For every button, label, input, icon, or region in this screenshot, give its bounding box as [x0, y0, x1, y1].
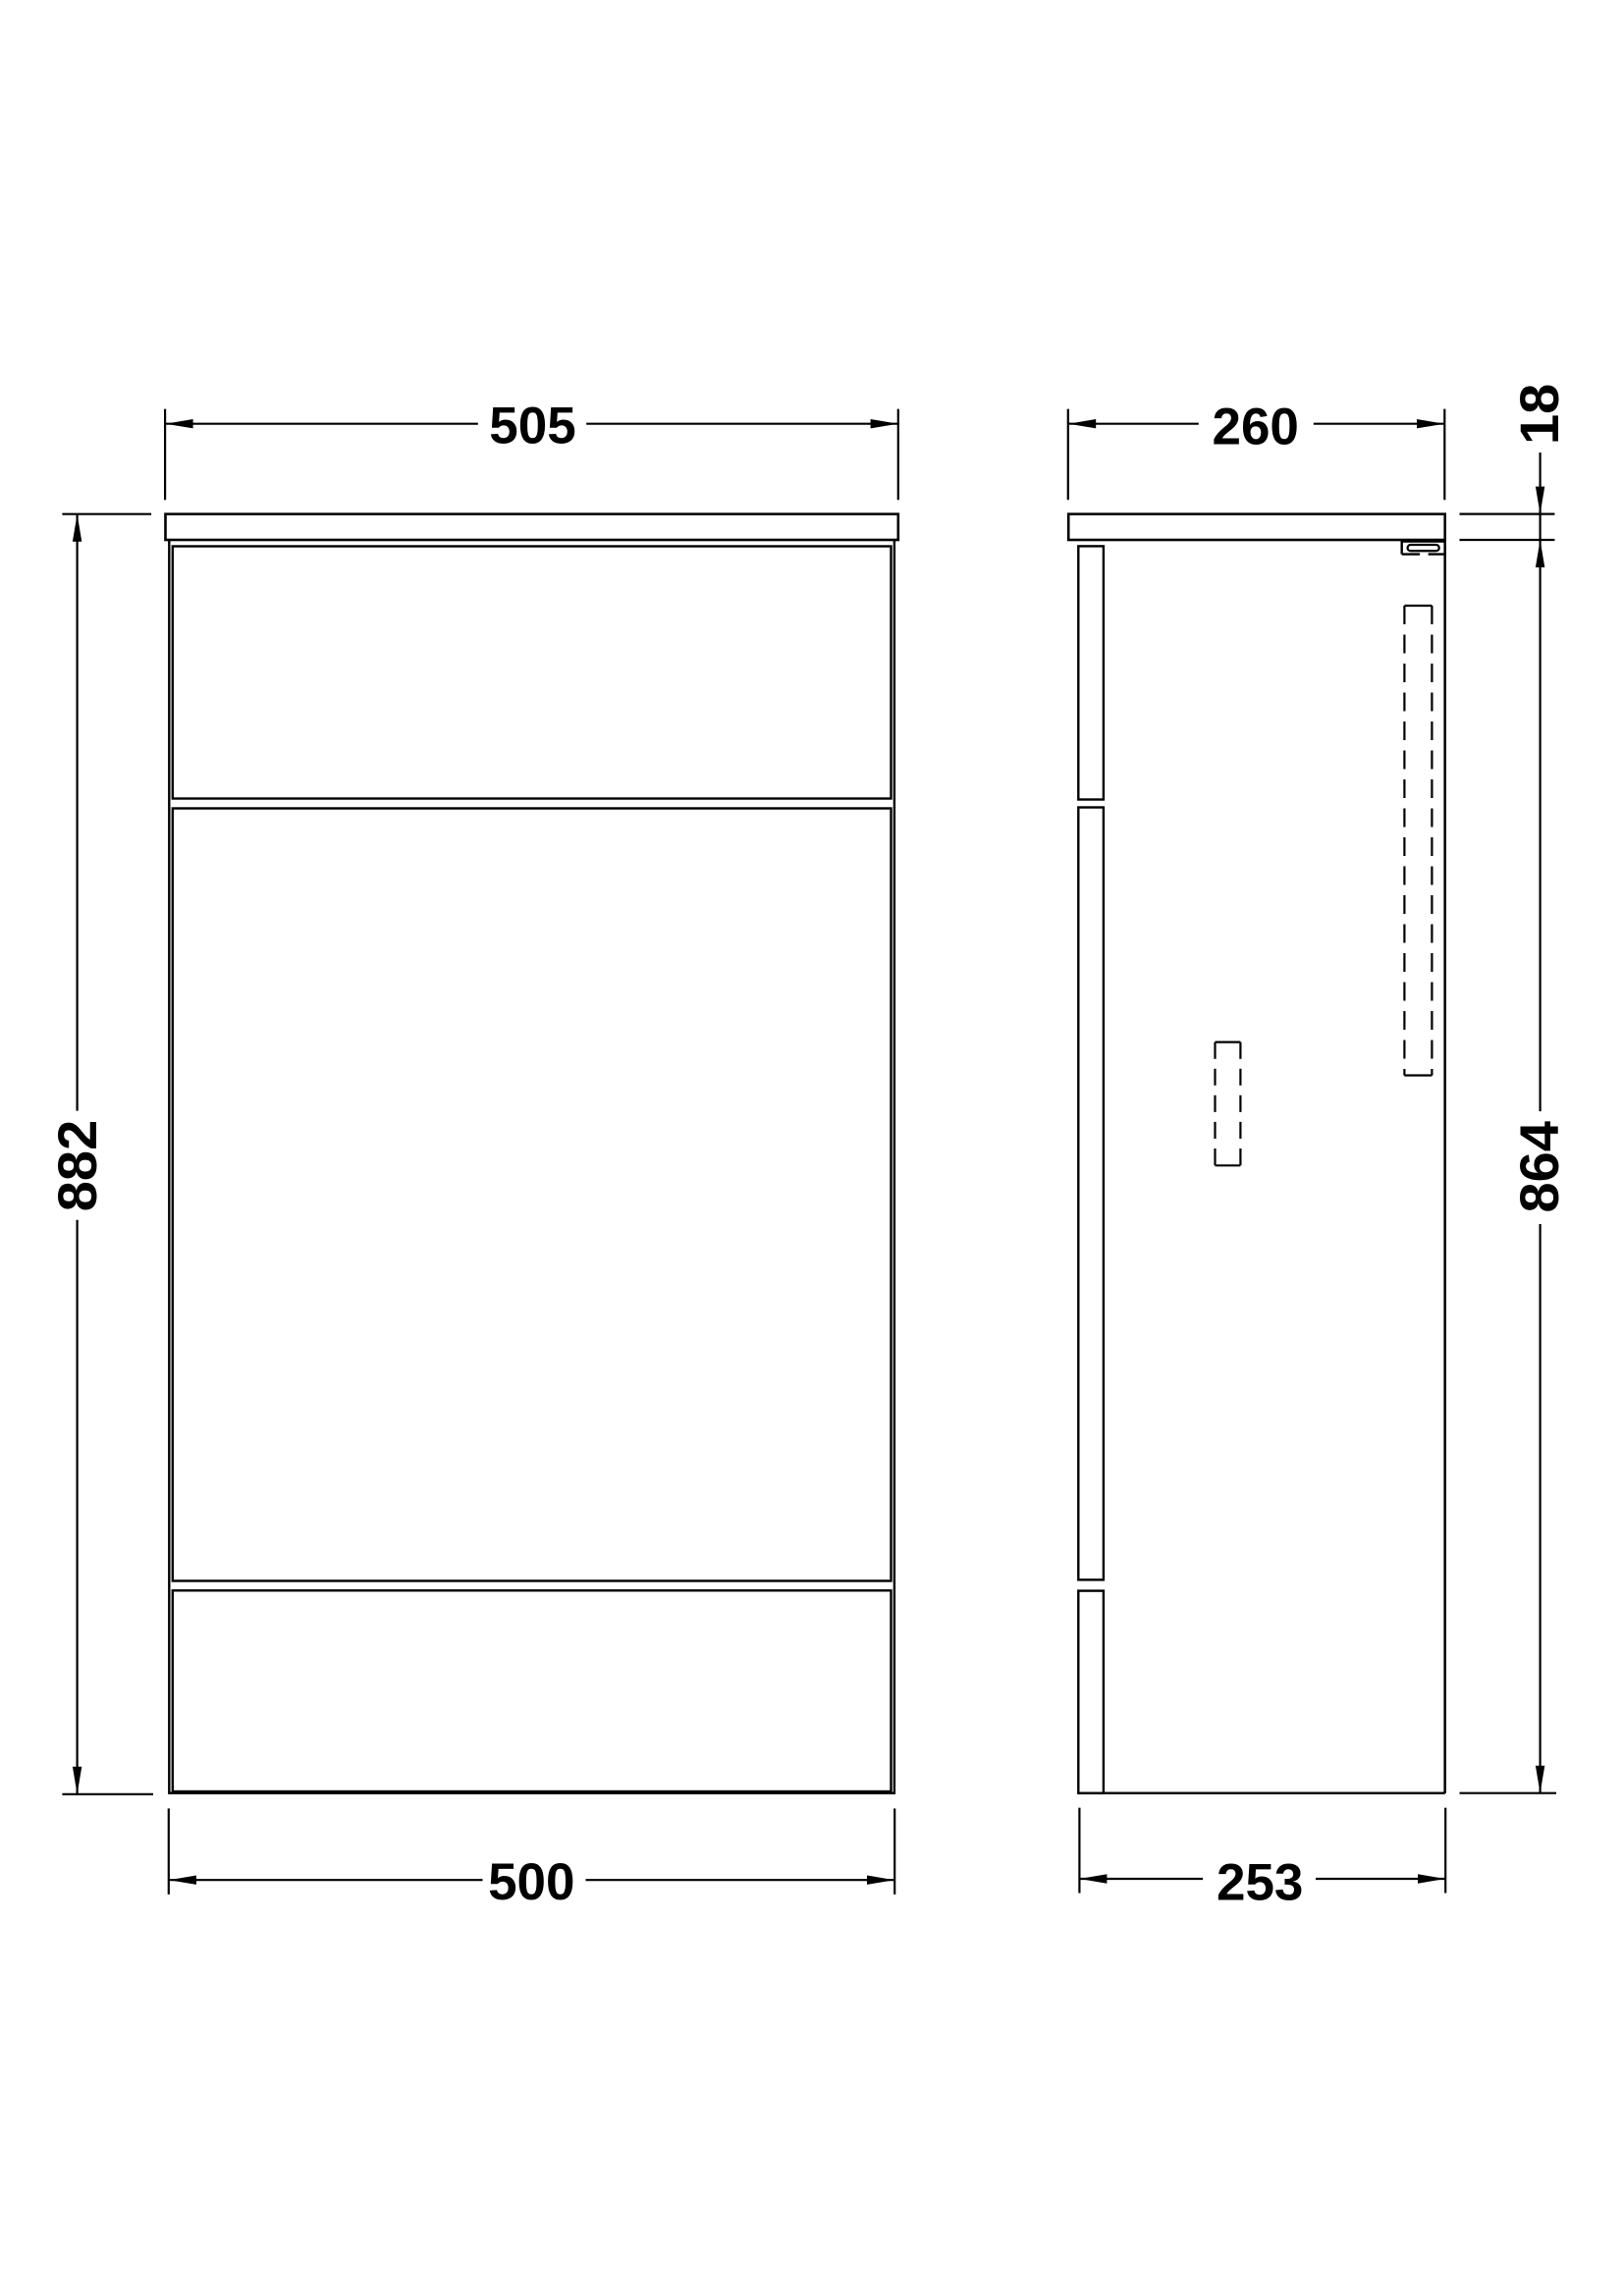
svg-text:864: 864 — [1508, 1121, 1570, 1212]
svg-text:882: 882 — [46, 1120, 108, 1211]
svg-text:253: 253 — [1217, 1854, 1303, 1912]
svg-text:260: 260 — [1212, 399, 1298, 456]
svg-text:500: 500 — [488, 1853, 574, 1911]
svg-text:505: 505 — [489, 398, 575, 455]
svg-text:18: 18 — [1508, 384, 1570, 445]
